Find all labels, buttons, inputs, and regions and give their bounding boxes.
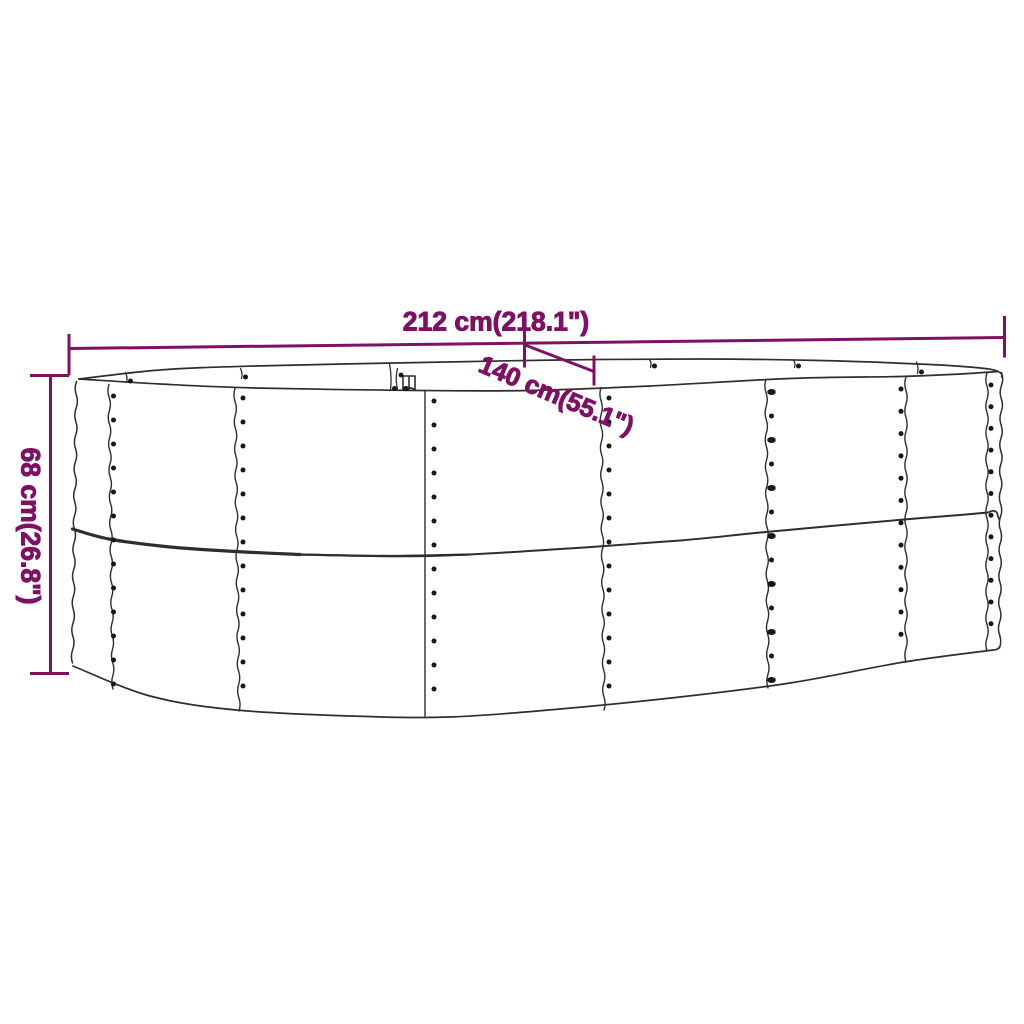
svg-text:140 cm(55.1"): 140 cm(55.1") [475, 351, 638, 441]
svg-text:212 cm(218.1"): 212 cm(218.1") [403, 307, 589, 337]
svg-text:68 cm(26.8"): 68 cm(26.8") [16, 448, 46, 605]
